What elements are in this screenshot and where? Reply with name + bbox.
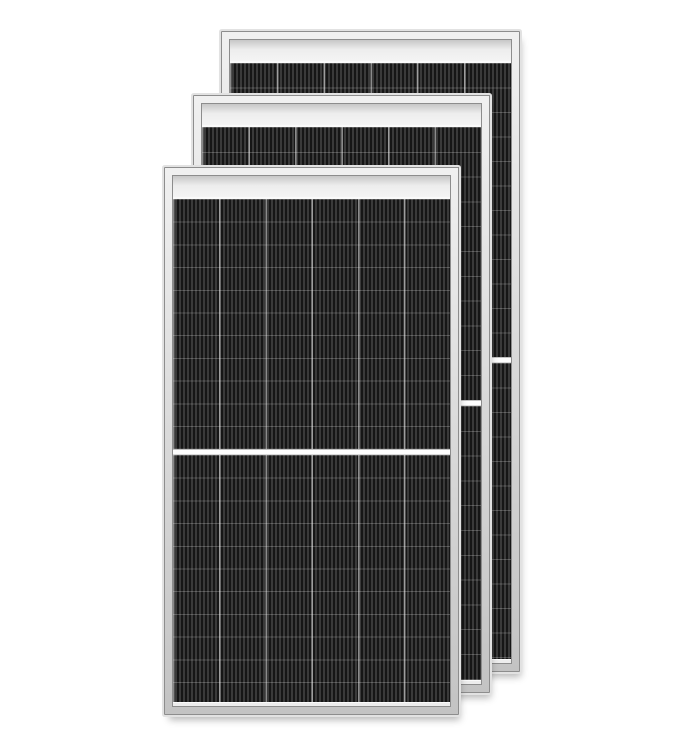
glass-top-margin <box>173 176 450 199</box>
glass-top-margin <box>230 40 511 63</box>
cell-matrix-lower <box>173 455 450 702</box>
glass-bottom-margin <box>173 702 450 706</box>
front-solar-panel <box>164 167 459 715</box>
product-image-stage <box>0 0 684 748</box>
glass-top-margin <box>202 104 481 127</box>
cell-matrix-upper <box>173 199 450 449</box>
panel-glass <box>172 175 451 707</box>
